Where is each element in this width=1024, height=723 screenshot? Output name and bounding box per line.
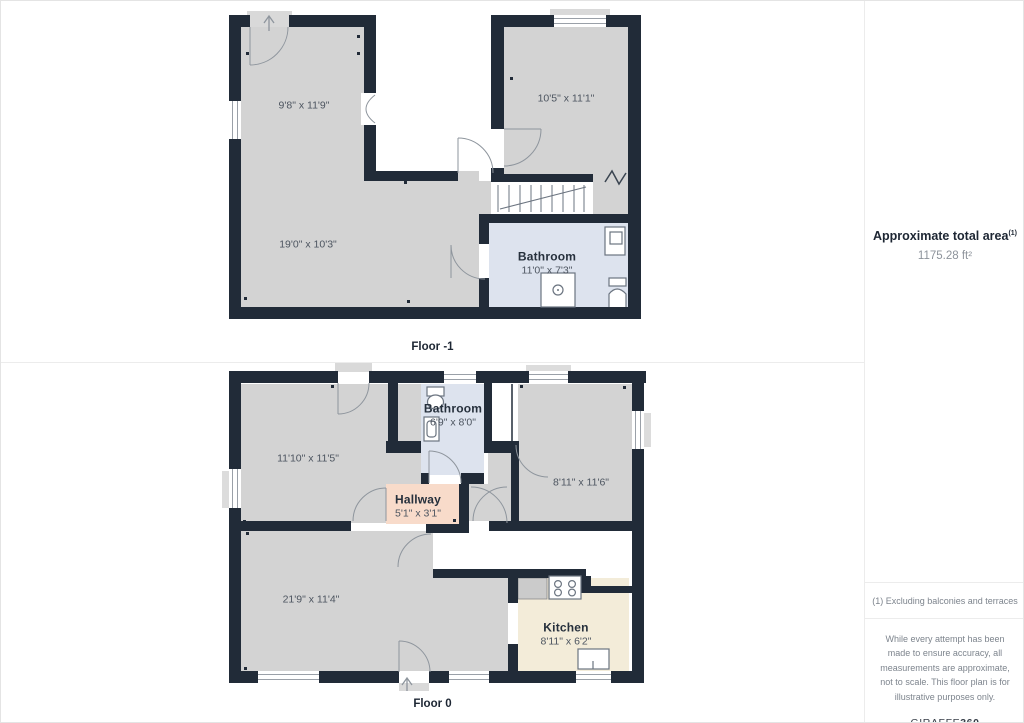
floor-minus1-plan <box>229 9 641 319</box>
total-area-title-text: Approximate total area <box>873 229 1008 243</box>
giraffe360-logo: GIRAFFE360 <box>865 717 1024 723</box>
floor-plan-page: 9'8" x 11'9"10'5" x 11'1"19'0" x 10'3"Ba… <box>0 0 1024 723</box>
stairs-icon <box>498 185 586 212</box>
plans-divider <box>1 362 864 363</box>
total-area-block: Approximate total area(1) 1175.28 ft² <box>865 229 1024 262</box>
plan-area: 9'8" x 11'9"10'5" x 11'1"19'0" x 10'3"Ba… <box>1 1 864 723</box>
floor-0-caption: Floor 0 <box>1 698 864 710</box>
total-area-title: Approximate total area(1) <box>865 229 1024 243</box>
giraffe360-logo-360: 360 <box>960 717 979 723</box>
total-area-footnote-ref: (1) <box>1008 230 1017 237</box>
disclaimer: While every attempt has been made to ens… <box>865 619 1024 713</box>
floor-0-plan <box>222 363 651 691</box>
giraffe360-logo-text: GIRAFFE <box>910 717 960 723</box>
floor-minus1-caption: Floor -1 <box>1 341 864 353</box>
sidebar-bottom: (1) Excluding balconies and terraces Whi… <box>865 582 1024 723</box>
total-area-value: 1175.28 ft² <box>865 250 1024 262</box>
sidebar: Approximate total area(1) 1175.28 ft² (1… <box>864 1 1024 723</box>
footnote: (1) Excluding balconies and terraces <box>865 583 1024 618</box>
door-icon <box>361 93 379 125</box>
